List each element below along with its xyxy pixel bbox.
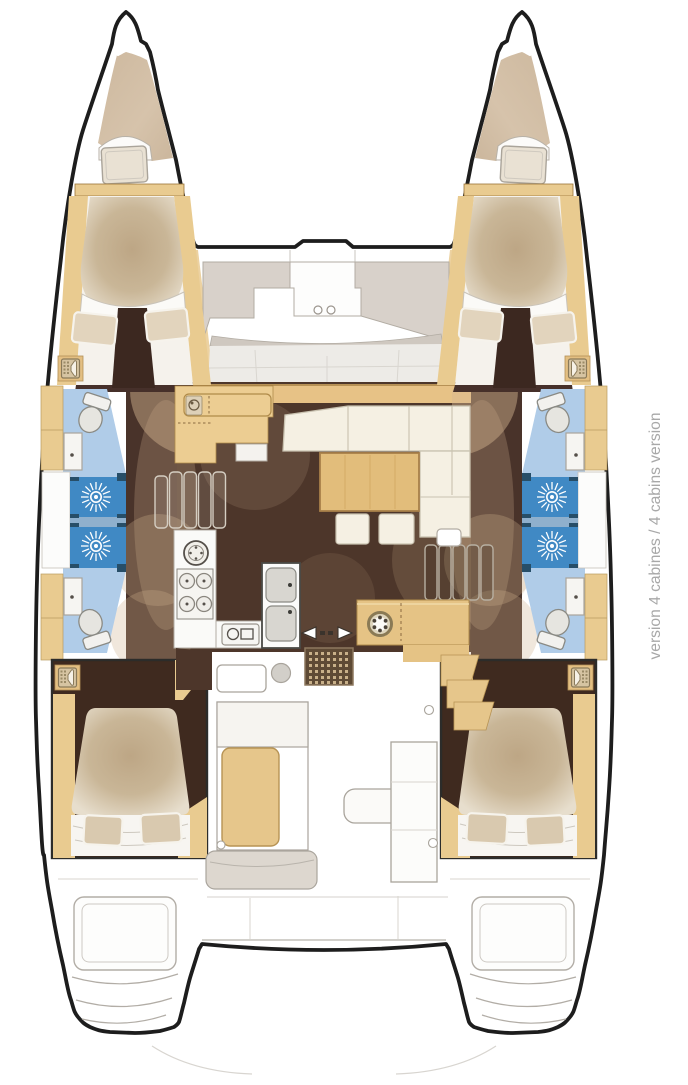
svg-text:version 4 cabines / 4 cabins v: version 4 cabines / 4 cabins version bbox=[647, 412, 664, 659]
